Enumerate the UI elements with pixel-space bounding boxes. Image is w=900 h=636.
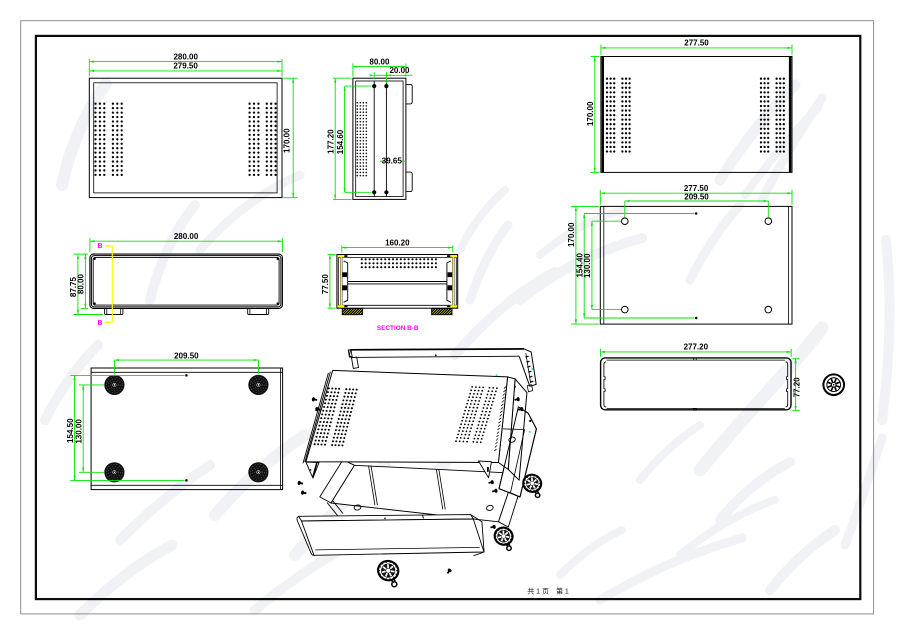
svg-text:B: B (97, 243, 102, 250)
svg-text:280.00: 280.00 (174, 232, 199, 241)
svg-text:277.20: 277.20 (684, 343, 709, 352)
svg-text:209.50: 209.50 (684, 193, 709, 202)
svg-text:77.50: 77.50 (321, 274, 330, 295)
svg-text:20.00: 20.00 (389, 66, 410, 75)
svg-text:77.20: 77.20 (793, 377, 802, 398)
svg-text:共 1 页 第 1: 共 1 页 第 1 (527, 587, 569, 596)
svg-text:279.50: 279.50 (173, 62, 198, 71)
svg-text:177.20: 177.20 (327, 129, 336, 154)
svg-text:B: B (97, 320, 102, 327)
svg-text:39.65: 39.65 (382, 157, 403, 166)
svg-text:170.00: 170.00 (586, 101, 595, 126)
svg-text:80.00: 80.00 (77, 274, 86, 295)
svg-text:170.00: 170.00 (282, 128, 291, 153)
svg-text:160.20: 160.20 (385, 238, 410, 247)
svg-text:280.00: 280.00 (173, 52, 198, 61)
svg-text:209.50: 209.50 (174, 352, 199, 361)
svg-text:130.00: 130.00 (74, 419, 83, 444)
svg-text:170.00: 170.00 (567, 222, 576, 247)
svg-text:130.00: 130.00 (583, 253, 592, 278)
svg-text:154.60: 154.60 (336, 129, 345, 154)
svg-text:277.50: 277.50 (684, 39, 709, 48)
svg-text:80.00: 80.00 (369, 57, 390, 66)
svg-text:SECTION B-B: SECTION B-B (377, 325, 419, 332)
